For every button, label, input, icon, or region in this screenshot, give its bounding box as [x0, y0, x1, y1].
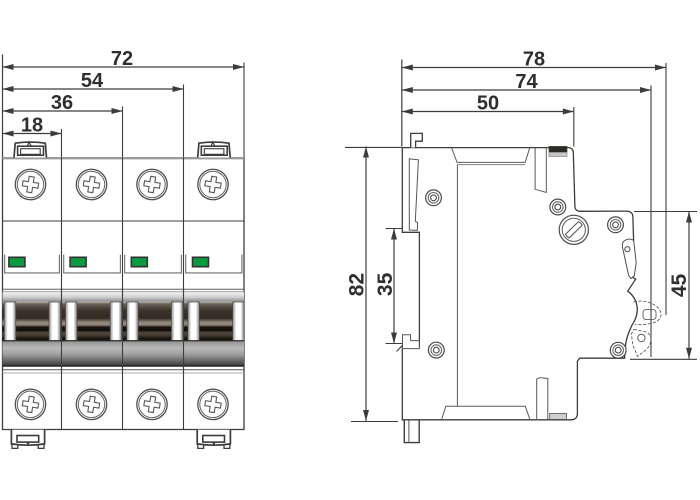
svg-text:54: 54 — [81, 70, 104, 92]
svg-text:18: 18 — [21, 115, 43, 137]
svg-text:50: 50 — [477, 93, 499, 115]
svg-text:72: 72 — [111, 48, 133, 70]
svg-text:74: 74 — [515, 71, 538, 93]
svg-text:78: 78 — [523, 49, 545, 71]
svg-text:82: 82 — [345, 273, 368, 296]
svg-text:35: 35 — [374, 272, 397, 296]
svg-text:36: 36 — [51, 92, 73, 114]
svg-text:45: 45 — [668, 274, 691, 298]
